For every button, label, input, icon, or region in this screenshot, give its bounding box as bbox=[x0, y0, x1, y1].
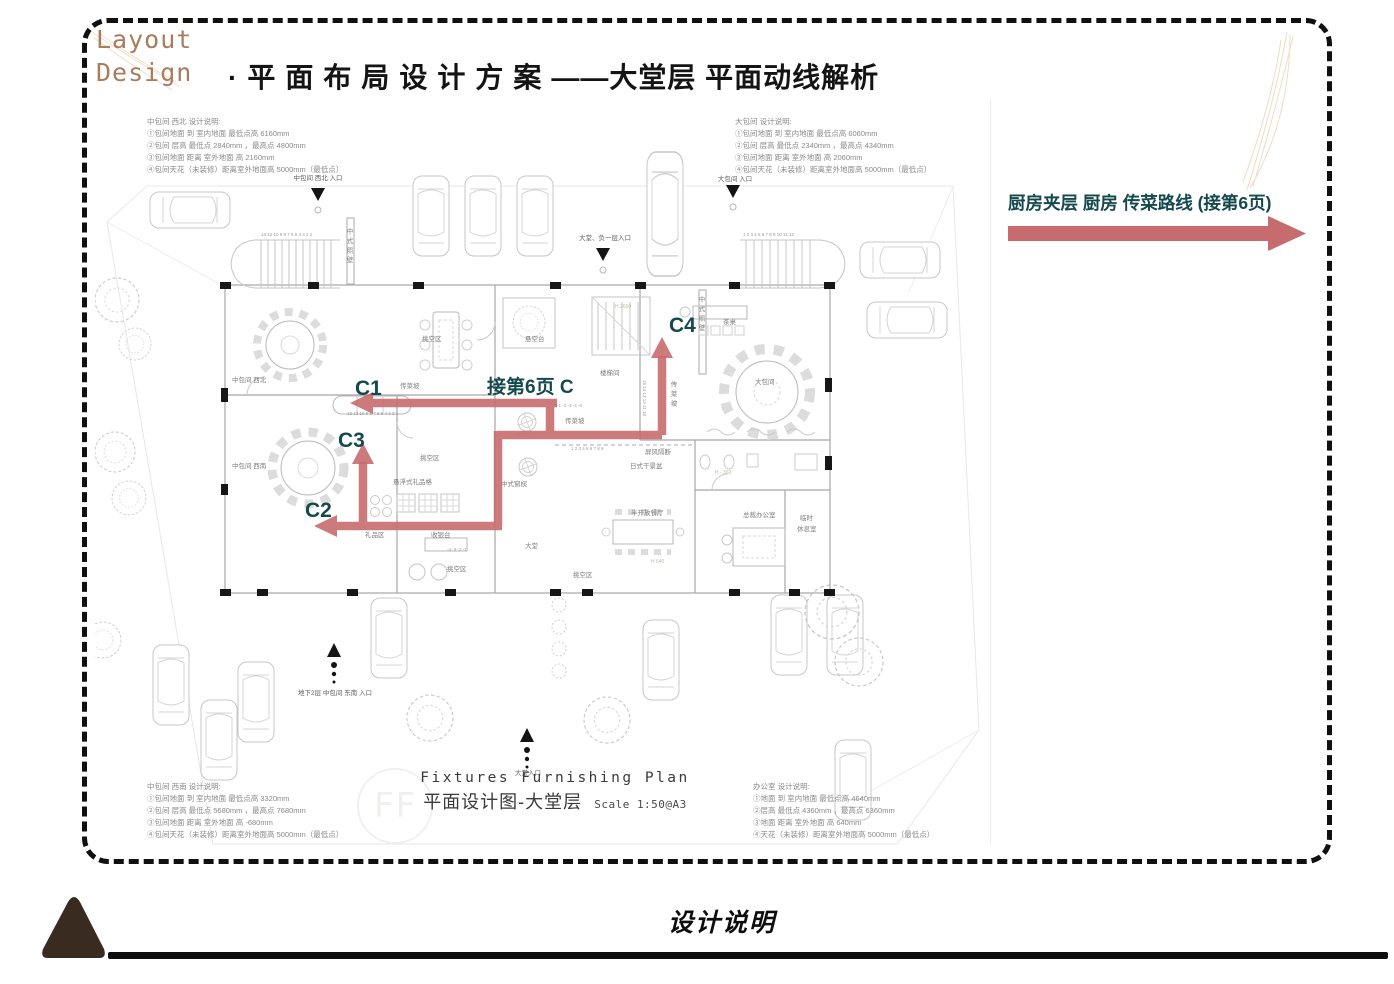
kitchen-route-arrow-icon bbox=[1008, 216, 1308, 252]
room-label-food-ramp: 传菜坡 bbox=[667, 381, 677, 410]
route-label-c1: C1 bbox=[355, 377, 382, 400]
elevation-mark: H - 360 bbox=[715, 470, 732, 476]
slide: Layout Design ·平面布局设计方案——大堂层 平面动线解析 bbox=[0, 0, 1394, 984]
route-label-c4: C4 bbox=[669, 314, 696, 337]
entrance-arrow-icon bbox=[726, 185, 740, 198]
footer-section-title: 设计说明 bbox=[668, 903, 776, 939]
note-line: ④包间天花（未装修）距离室外地面高 5000mm（最低点） bbox=[735, 164, 931, 176]
note-line: ④包间天花（未装修）距离室外地面高 5000mm（最低点） bbox=[147, 829, 343, 841]
room-label: 日式干景盆 bbox=[630, 461, 663, 470]
dimension-marks: 13 12 10 9 8 7 6 5 4 3 2 1 1 2 3 4 5 6 7… bbox=[261, 232, 794, 565]
floor-plan-drawing: 中包间 西北 中包间 西南 楼梯间 传菜坡 传菜坡 挑空区 挑空区 挑空区 挑空… bbox=[95, 100, 990, 845]
note-line: 中包间 西北 设计说明: bbox=[147, 116, 343, 128]
kitchen-route-note: 厨房夹层 厨房 传菜路线 (接第6页) bbox=[1008, 190, 1271, 215]
note-line: 办公室 设计说明: bbox=[753, 781, 934, 793]
room-label: 挑空区 bbox=[573, 570, 593, 579]
plan-scale: Scale 1:50@A3 bbox=[594, 798, 687, 811]
page-title-rest: ——大堂层 平面动线解析 bbox=[551, 62, 879, 93]
route-label-c3: C3 bbox=[338, 429, 365, 452]
note-line: ②包间 层高 最低点 2340mm ，最高点 4340mm bbox=[735, 140, 931, 152]
notes-bottom-left: 中包间 西南 设计说明: ①包间地面 到 室内地面 最低点高 3320mm ②包… bbox=[147, 781, 343, 841]
plan-title-zh: 平面设计图-大堂层 Scale 1:50@A3 bbox=[390, 788, 720, 814]
brand-line2: Design bbox=[96, 58, 192, 87]
page-title-spaced: ·平面布局设计方案 bbox=[228, 62, 551, 93]
room-label: 挑空区 bbox=[420, 453, 440, 462]
note-line: ②包间 层高 最低点 5680mm ，最高点 7680mm bbox=[147, 805, 343, 817]
stair-numbers: -1 -2 -3 -4 -5 bbox=[557, 403, 583, 408]
parked-cars bbox=[150, 152, 947, 820]
note-line: 中包间 西南 设计说明: bbox=[147, 781, 343, 793]
entrance-arrow-icon bbox=[520, 728, 534, 742]
footer-divider-line bbox=[108, 952, 1388, 959]
page-title: ·平面布局设计方案——大堂层 平面动线解析 bbox=[228, 56, 879, 96]
note-line: ④包间天花（未装修）距离室外地面高 5000mm（最低点） bbox=[147, 164, 343, 176]
notes-bottom-right: 办公室 设计说明: ①地面 到 室内地面 最低点高 4640mm ②层高 最低点… bbox=[753, 781, 934, 841]
room-label: 楼梯间 bbox=[600, 368, 620, 377]
room-label: 大包间 bbox=[755, 377, 775, 386]
note-line: ①包间地面 到 室内地面 最低点高 6160mm bbox=[147, 128, 343, 140]
entrance-label: 大堂、负一层入口 bbox=[579, 233, 631, 242]
note-line: ①包间地面 到 室内地面 最低点高 6060mm bbox=[735, 128, 931, 140]
room-label-screen-wall: 中式照壁 bbox=[343, 228, 353, 266]
note-line: ①包间地面 到 室内地面 最低点高 3320mm bbox=[147, 793, 343, 805]
note-line: ②层高 最低点 4360mm ，最高点 6360mm bbox=[753, 805, 934, 817]
furniture bbox=[247, 306, 817, 580]
footer-triangle-icon bbox=[38, 890, 114, 964]
route-label-continue: 接第6页 C bbox=[487, 375, 574, 398]
room-label: 屏风隔断 bbox=[645, 447, 672, 456]
room-label: 中包间 西南 bbox=[232, 461, 267, 470]
notes-top-right: 大包间 设计说明: ①包间地面 到 室内地面 最低点高 6060mm ②包间 层… bbox=[735, 116, 931, 176]
notes-top-left: 中包间 西北 设计说明: ①包间地面 到 室内地面 最低点高 6160mm ②包… bbox=[147, 116, 343, 176]
room-label: 半开放餐厅 bbox=[631, 508, 664, 517]
stair-numbers: 1 2 3 4 5 6 7 8 9 10 11 12 bbox=[743, 232, 794, 237]
room-label: 礼品区 bbox=[365, 530, 385, 539]
room-label: 悬空台 bbox=[525, 334, 545, 343]
entrance-arrow-icon bbox=[327, 643, 341, 657]
note-line: 大包间 设计说明: bbox=[735, 116, 931, 128]
note-line: ①地面 到 室内地面 最低点高 4640mm bbox=[753, 793, 934, 805]
note-line: ④天花（未装修）距离室外地面高 5000mm（最低点） bbox=[753, 829, 934, 841]
route-arrowhead-c4-icon bbox=[651, 337, 673, 358]
stair-numbers: 15 14 13 12 11 10 bbox=[642, 380, 647, 416]
room-labels: 中包间 西北 中包间 西南 楼梯间 传菜坡 传菜坡 挑空区 挑空区 挑空区 挑空… bbox=[232, 317, 817, 579]
route-label-c2: C2 bbox=[305, 499, 332, 522]
note-line: ③包间地面 距离 室外地面 高 2160mm bbox=[147, 152, 343, 164]
entrance-arrow-icon bbox=[596, 248, 610, 261]
brand-line1: Layout bbox=[96, 25, 192, 54]
entrance-arrow-icon bbox=[311, 188, 325, 201]
room-label: 传菜坡 bbox=[400, 381, 420, 390]
room-label: 大堂 bbox=[525, 541, 539, 550]
room-label: 挑空区 bbox=[447, 564, 467, 573]
note-line: ③包间地面 距离 室外地面 高 2060mm bbox=[735, 152, 931, 164]
entrance-label: 地下2层 中包间 东南 入口 bbox=[298, 688, 372, 697]
note-line: ②包间 层高 最低点 2840mm ，最高点 4800mm bbox=[147, 140, 343, 152]
room-label: 总裁办公室 bbox=[743, 510, 776, 519]
room-label: 中包间 西北 bbox=[232, 375, 267, 384]
note-line: ③地面 距离 室外地面 高 640mm bbox=[753, 817, 934, 829]
plan-title-en: Fixtures Furnishing Plan bbox=[390, 770, 720, 786]
note-line: ③包间地面 距离 室外地面 高 -680mm bbox=[147, 817, 343, 829]
room-label: 收银台 bbox=[431, 530, 451, 539]
stair-numbers: 13 12 10 9 8 7 6 5 4 3 2 1 bbox=[261, 232, 313, 237]
room-label: 挑空区 bbox=[422, 334, 442, 343]
room-label: 茶桌 bbox=[723, 317, 737, 326]
plan-title-zh-text: 平面设计图-大堂层 bbox=[423, 792, 582, 812]
room-label: 传菜坡 bbox=[565, 416, 585, 425]
room-label: 中式窗棂 bbox=[501, 479, 528, 488]
circulation-routes bbox=[314, 337, 673, 537]
room-label: 休息室 bbox=[797, 524, 817, 533]
room-label: 临时 bbox=[800, 513, 814, 522]
elevation-mark: H 2660 bbox=[615, 304, 631, 310]
stair-numbers: 1 2 3 4 5 6 7 8 9 bbox=[571, 446, 604, 451]
stair-numbers: -4 -3 -2 -1 bbox=[447, 547, 467, 552]
room-label: 悬浮式礼品格 bbox=[393, 477, 433, 486]
floor-plan-panel: 中包间 西北 中包间 西南 楼梯间 传菜坡 传菜坡 挑空区 挑空区 挑空区 挑空… bbox=[95, 100, 991, 845]
plan-title-block: Fixtures Furnishing Plan 平面设计图-大堂层 Scale… bbox=[390, 770, 720, 814]
trees bbox=[95, 278, 883, 743]
room-label-screen-wall: 中式照壁 bbox=[695, 296, 705, 334]
elevation-mark: H 640 bbox=[651, 559, 665, 565]
